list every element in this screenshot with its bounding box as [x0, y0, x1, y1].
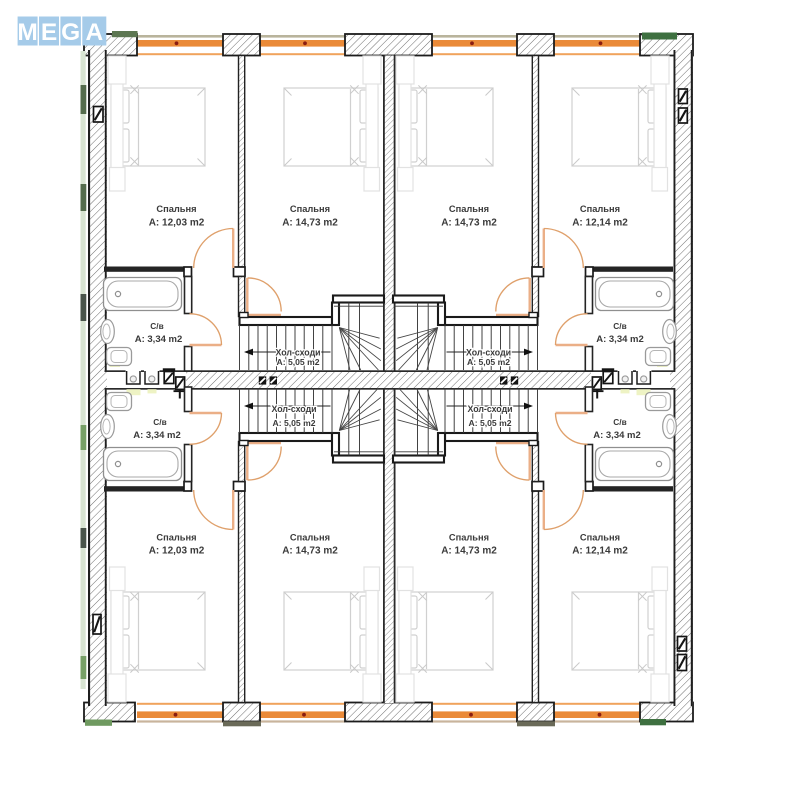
svg-text:С/в: С/в: [150, 321, 163, 331]
svg-text:А: 12,14 m2: А: 12,14 m2: [572, 546, 628, 557]
svg-text:G: G: [61, 19, 80, 46]
svg-text:С/в: С/в: [153, 417, 166, 427]
svg-text:А: 5,05 m2: А: 5,05 m2: [273, 418, 316, 428]
svg-text:А: 3,34 m2: А: 3,34 m2: [133, 430, 181, 441]
svg-text:А: 14,73 m2: А: 14,73 m2: [282, 218, 338, 229]
svg-text:А: 5,05 m2: А: 5,05 m2: [277, 357, 320, 367]
svg-text:Спальня: Спальня: [156, 533, 196, 543]
svg-text:С/в: С/в: [613, 321, 626, 331]
svg-text:А: 3,34 m2: А: 3,34 m2: [593, 430, 641, 441]
svg-text:Хол-сходи: Хол-сходи: [271, 404, 316, 414]
svg-text:E: E: [41, 19, 57, 46]
svg-text:Спальня: Спальня: [290, 533, 330, 543]
svg-text:А: 12,03 m2: А: 12,03 m2: [149, 218, 205, 229]
svg-text:Спальня: Спальня: [580, 204, 620, 214]
svg-text:Хол-сходи: Хол-сходи: [466, 348, 511, 358]
svg-text:А: 5,05 m2: А: 5,05 m2: [469, 418, 512, 428]
svg-text:С/в: С/в: [613, 417, 626, 427]
svg-text:A: A: [85, 19, 103, 46]
svg-text:Спальня: Спальня: [156, 204, 196, 214]
svg-text:А: 3,34 m2: А: 3,34 m2: [135, 334, 183, 345]
svg-text:А: 14,73 m2: А: 14,73 m2: [441, 218, 497, 229]
svg-text:Спальня: Спальня: [449, 204, 489, 214]
svg-text:Спальня: Спальня: [580, 533, 620, 543]
svg-text:Хол-сходи: Хол-сходи: [275, 348, 320, 358]
svg-text:А: 3,34 m2: А: 3,34 m2: [596, 334, 644, 345]
svg-text:А: 12,03 m2: А: 12,03 m2: [149, 546, 205, 557]
svg-text:Хол-сходи: Хол-сходи: [467, 404, 512, 414]
svg-text:Спальня: Спальня: [290, 204, 330, 214]
svg-text:Спальня: Спальня: [449, 533, 489, 543]
svg-text:M: M: [17, 19, 37, 46]
svg-text:А: 14,73 m2: А: 14,73 m2: [441, 546, 497, 557]
svg-text:А: 5,05 m2: А: 5,05 m2: [467, 357, 510, 367]
svg-text:А: 14,73 m2: А: 14,73 m2: [282, 546, 338, 557]
svg-text:А: 12,14 m2: А: 12,14 m2: [572, 218, 628, 229]
